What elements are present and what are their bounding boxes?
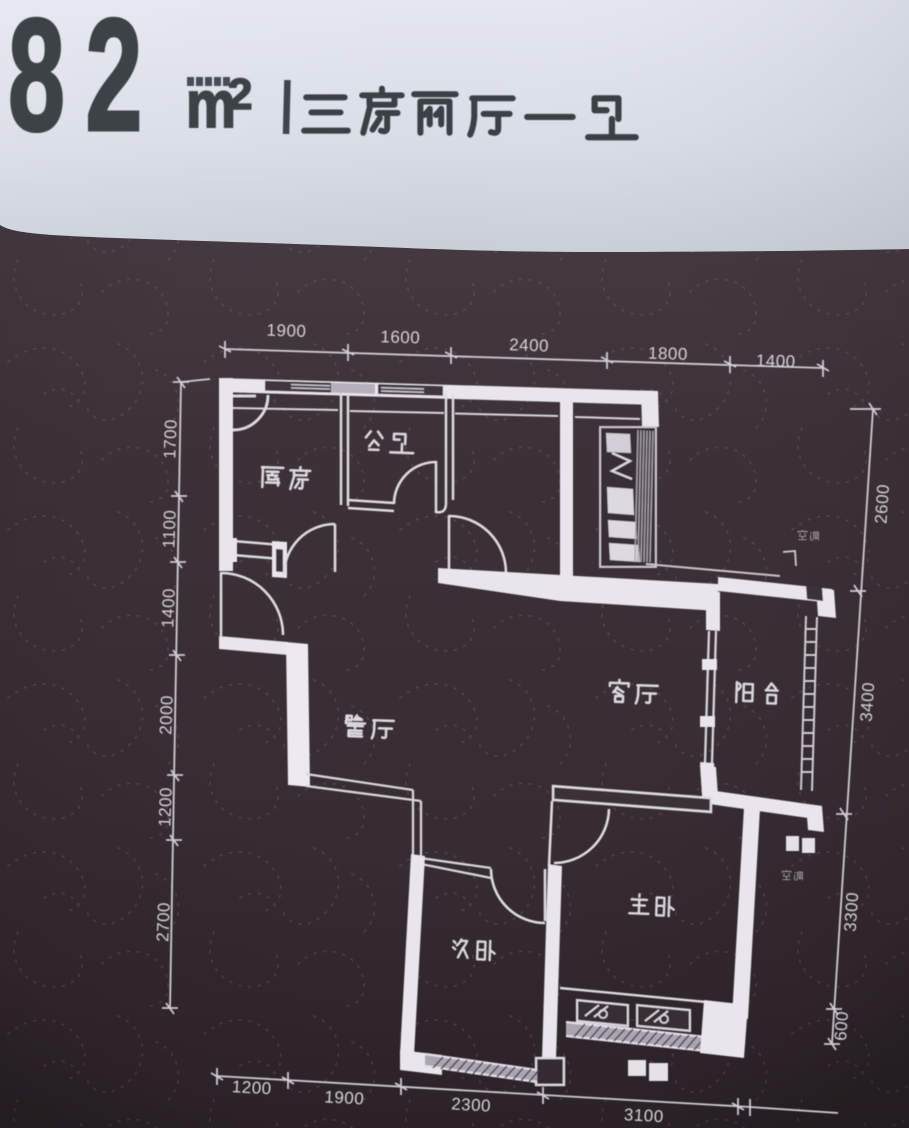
svg-text:2000: 2000 (156, 695, 176, 735)
svg-text:1700: 1700 (160, 419, 180, 459)
svg-text:1900: 1900 (324, 1087, 365, 1108)
svg-text:1100: 1100 (159, 509, 179, 548)
svg-text:3400: 3400 (857, 681, 879, 722)
svg-text:2: 2 (228, 70, 252, 119)
svg-text:1400: 1400 (158, 588, 178, 628)
svg-text:2600: 2600 (871, 483, 893, 524)
svg-text:1200: 1200 (155, 787, 175, 827)
svg-text:1900: 1900 (266, 321, 306, 341)
svg-text:2700: 2700 (153, 902, 173, 942)
svg-text:3100: 3100 (623, 1105, 664, 1126)
svg-text:3300: 3300 (841, 891, 863, 932)
svg-text:2400: 2400 (509, 335, 549, 355)
svg-text:2300: 2300 (451, 1094, 492, 1115)
svg-text:600: 600 (831, 1010, 852, 1041)
svg-text:1400: 1400 (756, 351, 796, 371)
svg-text:1800: 1800 (648, 344, 688, 364)
svg-text:1600: 1600 (380, 327, 420, 347)
svg-text:1200: 1200 (231, 1077, 272, 1098)
svg-text:82: 82 (8, 0, 163, 165)
